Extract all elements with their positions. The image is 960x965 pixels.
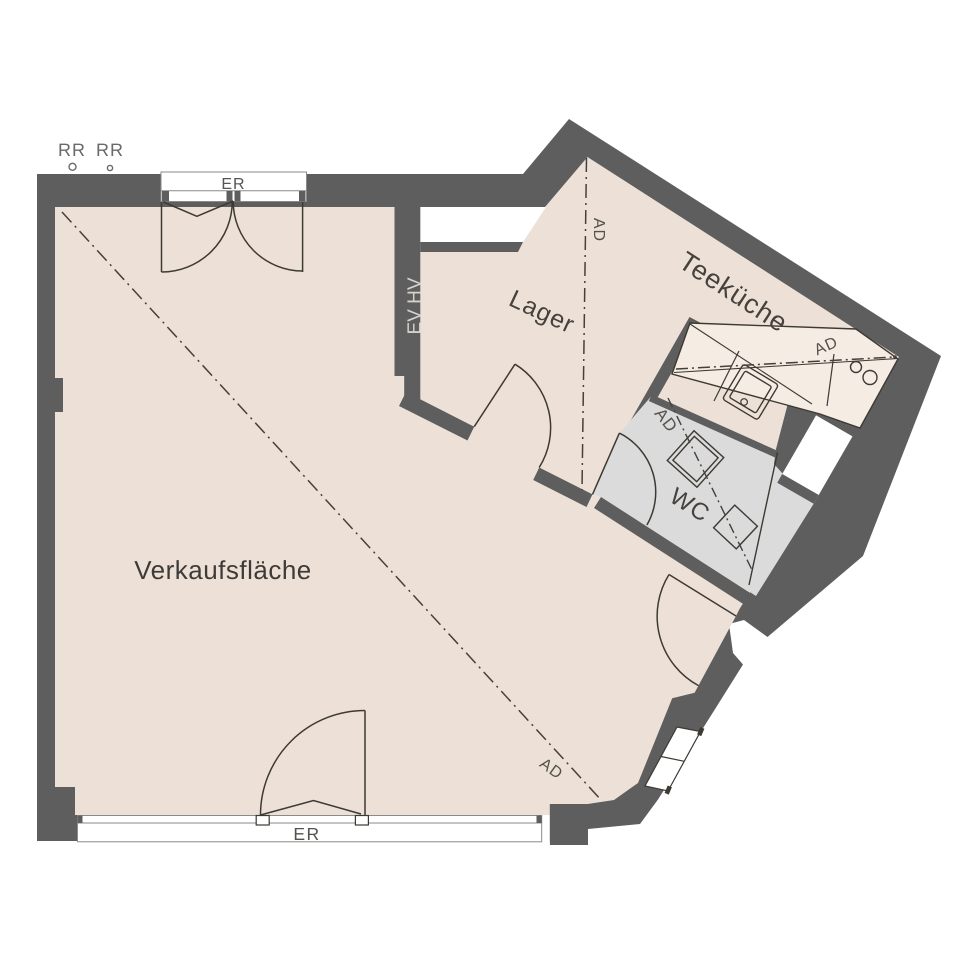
svg-text:EV HV: EV HV (405, 277, 426, 334)
svg-text:Verkaufsfläche: Verkaufsfläche (134, 555, 312, 585)
svg-text:ER: ER (221, 176, 245, 193)
svg-text:RR: RR (58, 140, 86, 160)
svg-text:AD: AD (590, 218, 607, 242)
svg-text:ER: ER (293, 824, 320, 844)
svg-text:RR: RR (96, 140, 124, 160)
